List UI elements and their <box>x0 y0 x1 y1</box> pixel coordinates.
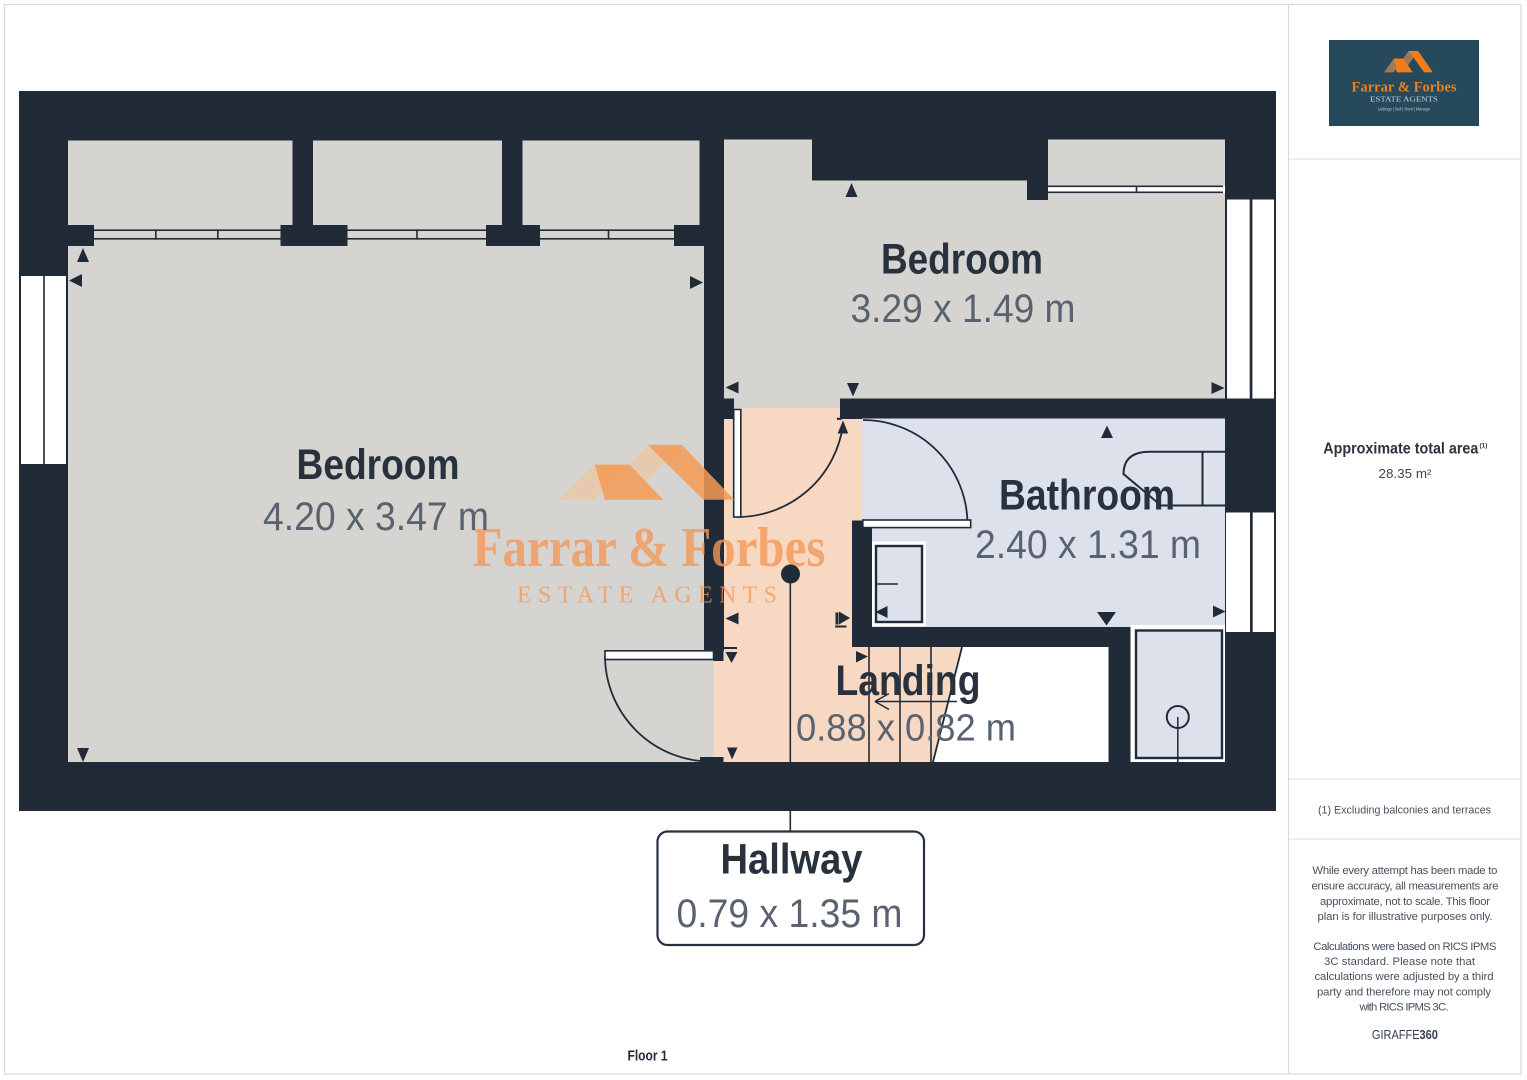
svg-text:party and therefore may not co: party and therefore may not comply <box>1317 987 1491 999</box>
svg-text:(1): (1) <box>1480 443 1488 450</box>
svg-text:approximate, not to scale. Thi: approximate, not to scale. This floor <box>1320 896 1490 908</box>
svg-text:0.88 x 0.82 m: 0.88 x 0.82 m <box>796 708 1016 750</box>
svg-text:2.40 x 1.31 m: 2.40 x 1.31 m <box>975 523 1201 567</box>
svg-text:Farrar & Forbes: Farrar & Forbes <box>473 517 826 579</box>
svg-text:ESTATE AGENTS: ESTATE AGENTS <box>1370 96 1438 104</box>
svg-text:Bedroom: Bedroom <box>881 236 1043 284</box>
svg-text:with RICS IPMS 3C.: with RICS IPMS 3C. <box>1359 1002 1449 1014</box>
svg-text:plan is for illustrative purpo: plan is for illustrative purposes only. <box>1318 911 1493 923</box>
svg-text:Landing: Landing <box>836 657 981 705</box>
svg-text:28.35 m²: 28.35 m² <box>1379 467 1432 481</box>
svg-text:4.20 x 3.47 m: 4.20 x 3.47 m <box>263 495 489 539</box>
svg-text:Approximate total area: Approximate total area <box>1323 441 1478 458</box>
svg-text:calculations were adjusted by: calculations were adjusted by a third <box>1315 971 1494 983</box>
svg-text:Hallway: Hallway <box>721 836 863 884</box>
svg-text:0.79 x 1.35 m: 0.79 x 1.35 m <box>677 892 903 936</box>
svg-text:GIRAFFE360: GIRAFFE360 <box>1372 1028 1438 1042</box>
svg-text:Lettings | Sell | Rent | Manag: Lettings | Sell | Rent | Manage <box>1378 107 1430 112</box>
svg-text:(1) Excluding balconies and te: (1) Excluding balconies and terraces <box>1318 805 1491 817</box>
svg-text:Bathroom: Bathroom <box>999 472 1175 520</box>
svg-text:3C standard. Please note that: 3C standard. Please note that <box>1324 956 1476 968</box>
svg-text:Calculations were based on RIC: Calculations were based on RICS IPMS <box>1313 941 1496 953</box>
svg-text:While every attempt has been m: While every attempt has been made to <box>1312 865 1497 877</box>
svg-text:Floor 1: Floor 1 <box>628 1048 668 1065</box>
svg-text:Bedroom: Bedroom <box>297 441 460 489</box>
svg-text:Farrar & Forbes: Farrar & Forbes <box>1352 80 1457 96</box>
svg-text:ensure accuracy, all measureme: ensure accuracy, all measurements are <box>1312 881 1499 893</box>
svg-text:3.29 x 1.49 m: 3.29 x 1.49 m <box>851 287 1076 331</box>
